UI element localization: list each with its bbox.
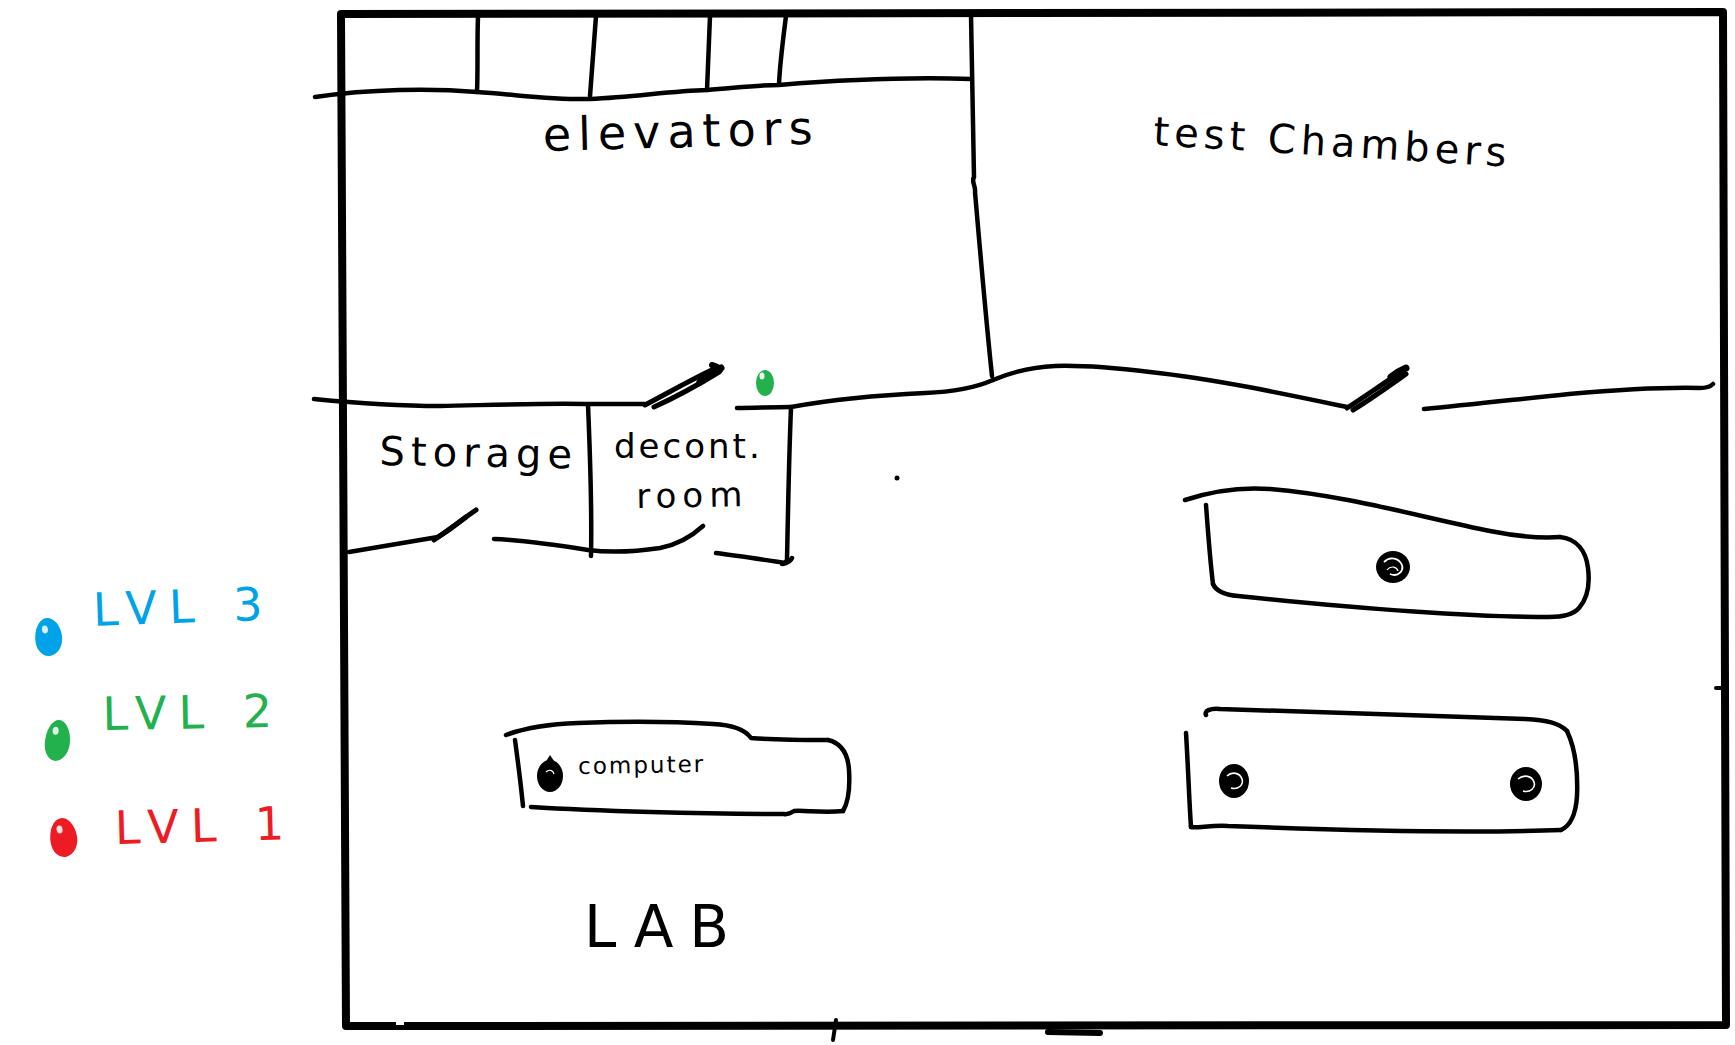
table-lower-scribble-dot-right [1510, 767, 1542, 801]
door-mark-storage [434, 510, 476, 540]
table-upper-scribble-dot [1376, 551, 1410, 583]
door-mark-decont [645, 365, 721, 407]
storage-bottom-wall [349, 537, 438, 552]
elevators-testchambers-divider-wall [971, 15, 992, 376]
outer-border-wall [341, 12, 1726, 1026]
corridor-level2-marker-dot [756, 370, 774, 396]
bottom-border-marks [833, 688, 1727, 1040]
elevator-divider-1 [477, 16, 478, 92]
storage-decont-divider-wall [588, 405, 591, 556]
dot-highlight [55, 825, 62, 834]
corridor-wall [314, 366, 1713, 409]
dot-highlight [41, 625, 48, 634]
room-label-storage: Storage [379, 428, 578, 477]
room-label-lab: LAB [584, 893, 745, 961]
storage-decont-bottom-wall [494, 526, 703, 551]
elevator-divider-4 [779, 16, 786, 84]
computer-desk-dot [537, 755, 563, 792]
elevator-divider-2 [590, 16, 596, 96]
door-mark-test-chambers [1347, 368, 1406, 410]
legend-label-lvl2: LVL 2 [102, 684, 284, 741]
elevator-divider-3 [707, 16, 710, 90]
bottom-border-notch [396, 1019, 404, 1025]
stray-pen-mark [895, 476, 900, 481]
dot-highlight [52, 727, 59, 735]
room-label-decont-line2: room [636, 474, 749, 516]
decont-right-wall [782, 408, 791, 564]
room-label-decont-line1: decont. [614, 426, 763, 466]
hand-drawn-facility-map: elevators test Chambers Storage decont. … [0, 0, 1735, 1045]
elevator-shaft-walls [315, 16, 971, 99]
decont-bottom-wall [716, 553, 792, 563]
computer-desk-label: computer [578, 751, 705, 779]
legend-label-lvl1: LVL 1 [114, 796, 297, 855]
elevator-row-bottom-wall [315, 78, 971, 99]
table-lower-scribble-dot-left [1219, 764, 1249, 798]
legend-label-lvl3: LVL 3 [92, 577, 275, 637]
room-label-elevators: elevators [542, 101, 820, 162]
